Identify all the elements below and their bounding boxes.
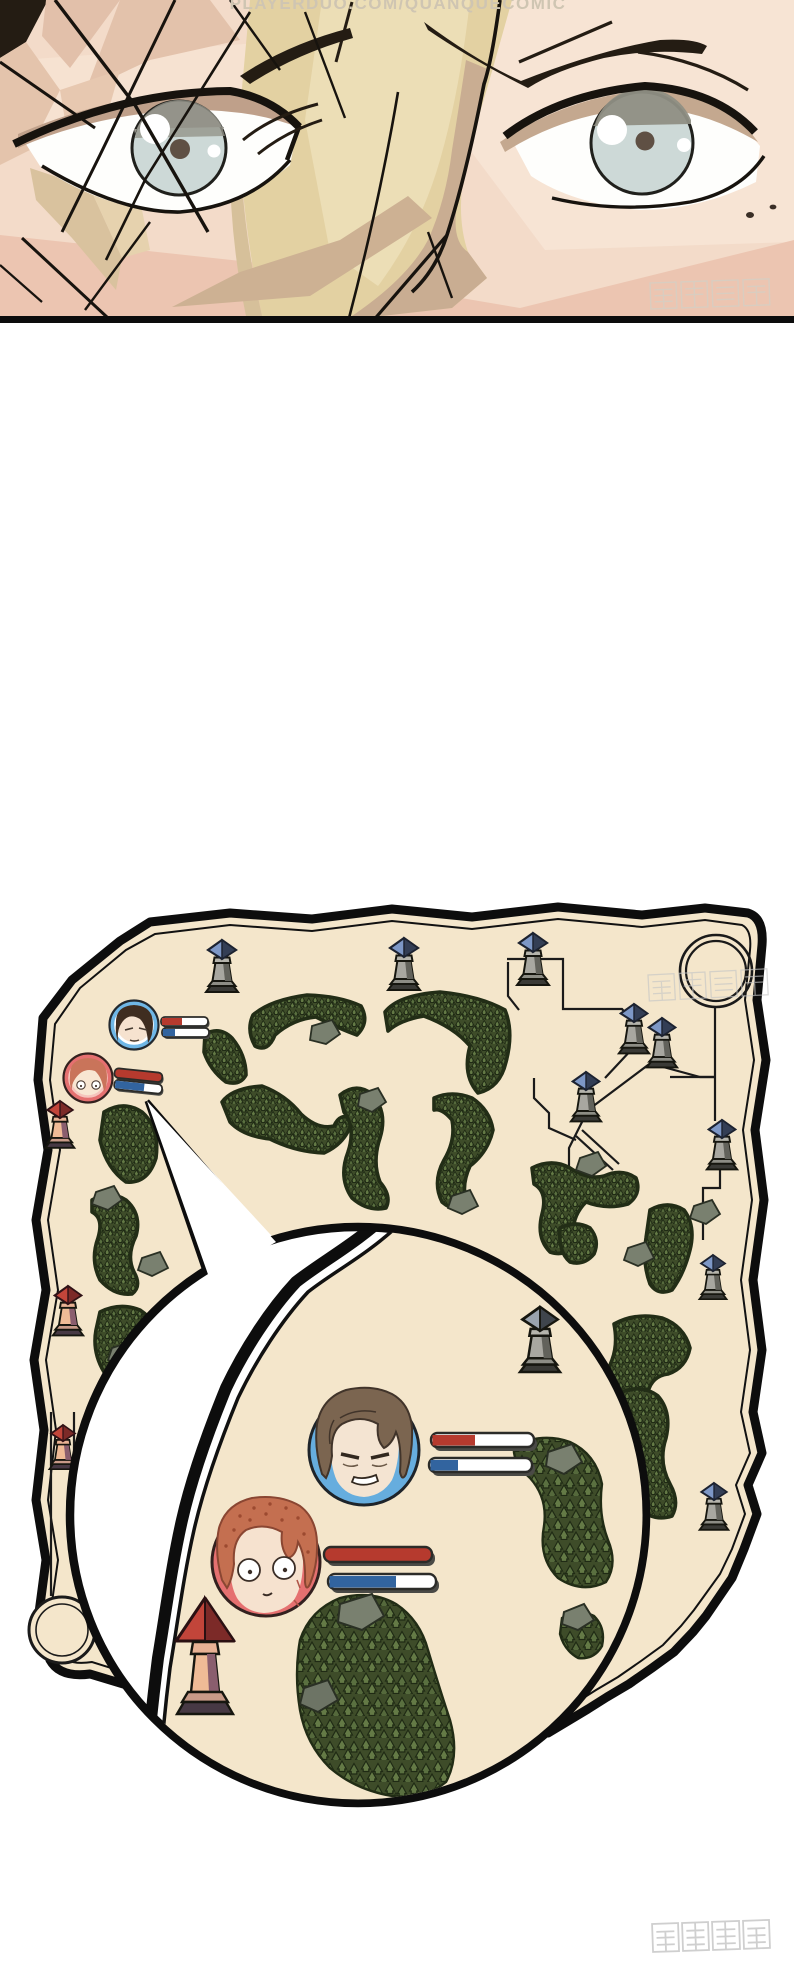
svg-text:PLAYERDUO.COM/QUANQUECOMIC: PLAYERDUO.COM/QUANQUECOMIC	[230, 0, 567, 13]
